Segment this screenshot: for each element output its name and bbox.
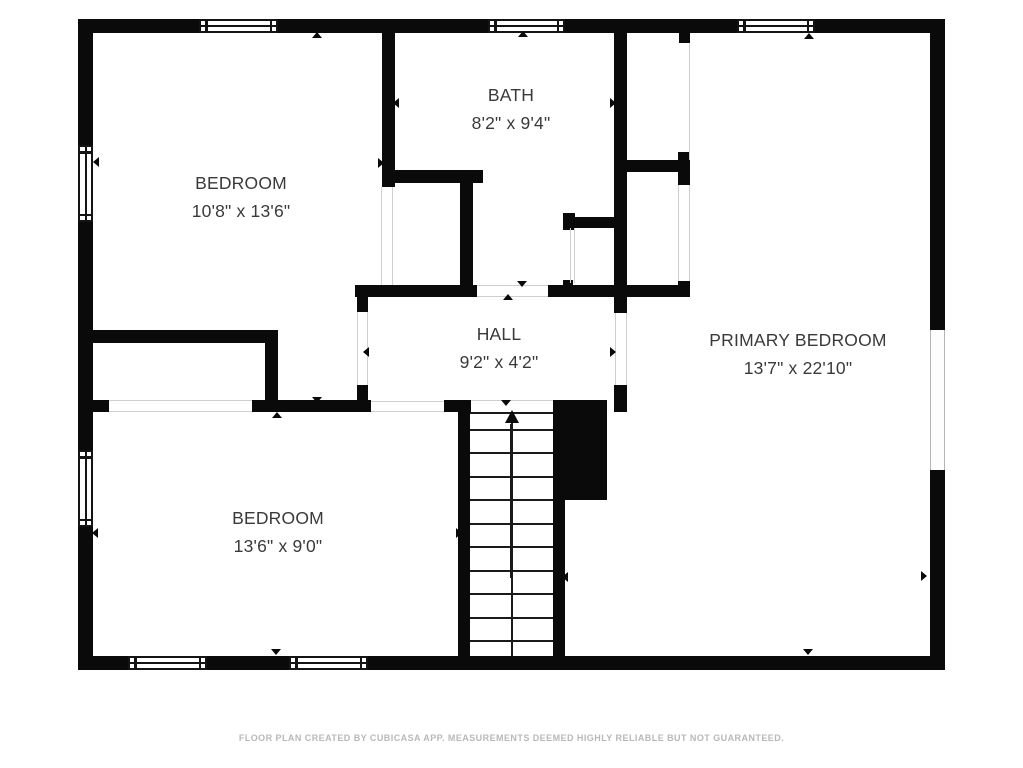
window-glass-line	[490, 25, 563, 27]
window-frame-cap	[270, 21, 273, 31]
wall-segment	[355, 285, 477, 297]
door-opening-line	[371, 401, 444, 402]
down-arrow-marker	[803, 649, 813, 655]
window-glass-line	[85, 147, 87, 220]
right-arrow-marker	[610, 98, 616, 108]
room-name: BEDROOM	[192, 169, 291, 197]
right-arrow-marker	[610, 347, 616, 357]
up-arrow-marker	[503, 294, 513, 300]
down-arrow-marker	[271, 649, 281, 655]
window-glass-line	[85, 452, 87, 525]
window-frame-cap	[494, 21, 497, 31]
wall-segment	[614, 33, 627, 313]
door-opening-line	[689, 43, 690, 160]
up-arrow-marker	[312, 32, 322, 38]
window-frame-cap	[360, 658, 363, 668]
room-name: BEDROOM	[232, 504, 324, 532]
door-opening-line	[570, 228, 571, 283]
room-label-bedroom-bottom-left: BEDROOM 13'6" x 9'0"	[232, 504, 324, 560]
door-opening-line	[357, 312, 358, 385]
down-arrow-marker	[501, 400, 511, 406]
door-opening-line	[392, 187, 393, 285]
window-frame-cap	[557, 21, 560, 31]
window	[128, 656, 207, 670]
window-frame-cap	[134, 658, 137, 668]
window-frame-cap	[80, 519, 91, 522]
wall-segment	[78, 656, 945, 670]
room-name: HALL	[460, 320, 539, 348]
left-arrow-marker	[92, 528, 98, 538]
up-arrow-marker	[804, 33, 814, 39]
up-arrow-marker	[518, 31, 528, 37]
wall-segment	[78, 19, 93, 670]
door-opening-line	[471, 400, 553, 401]
window	[930, 330, 945, 470]
door-opening-line	[626, 313, 627, 385]
wall-segment	[93, 330, 278, 343]
room-dimensions: 8'2" x 9'4"	[472, 109, 551, 137]
door-opening-line	[477, 285, 548, 286]
left-arrow-marker	[393, 98, 399, 108]
window-frame-cap	[807, 21, 810, 31]
door-opening-line	[371, 411, 444, 412]
wall-segment	[460, 170, 473, 297]
window-frame-cap	[743, 21, 746, 31]
down-arrow-marker	[312, 397, 322, 403]
wall-segment	[357, 285, 368, 312]
window-glass-line	[739, 25, 813, 27]
right-arrow-marker	[456, 528, 462, 538]
left-arrow-marker	[93, 157, 99, 167]
room-label-bath: BATH 8'2" x 9'4"	[472, 81, 551, 137]
room-dimensions: 9'2" x 4'2"	[460, 348, 539, 376]
up-arrow-marker	[272, 412, 282, 418]
window-glass-line	[291, 662, 366, 664]
door-opening-line	[109, 400, 252, 401]
room-label-hall: HALL 9'2" x 4'2"	[460, 320, 539, 376]
room-dimensions: 13'6" x 9'0"	[232, 532, 324, 560]
wall-segment	[563, 280, 573, 286]
window	[289, 656, 368, 670]
door-opening-line	[678, 185, 679, 281]
stair-direction-arrow-shaft	[510, 424, 512, 578]
window	[78, 145, 93, 222]
room-label-primary-bedroom: PRIMARY BEDROOM 13'7" x 22'10"	[709, 326, 886, 382]
left-arrow-marker	[363, 347, 369, 357]
window-frame-cap	[80, 214, 91, 217]
wall-segment	[614, 385, 627, 412]
right-arrow-marker	[378, 158, 384, 168]
window-glass-line	[130, 662, 205, 664]
window-glass-line	[201, 25, 276, 27]
window-frame-cap	[80, 151, 91, 154]
window-frame-cap	[295, 658, 298, 668]
wall-segment	[678, 281, 690, 297]
left-arrow-marker	[562, 572, 568, 582]
down-arrow-marker	[517, 281, 527, 287]
floor-plan-canvas: BEDROOM 10'8" x 13'6" BATH 8'2" x 9'4" P…	[0, 0, 1023, 768]
wall-segment	[78, 400, 109, 412]
right-arrow-marker	[921, 571, 927, 581]
window	[78, 450, 93, 527]
window-frame-cap	[205, 21, 208, 31]
window-frame-cap	[199, 658, 202, 668]
room-name: PRIMARY BEDROOM	[709, 326, 886, 354]
wall-segment	[679, 33, 690, 43]
room-dimensions: 10'8" x 13'6"	[192, 197, 291, 225]
wall-segment	[553, 400, 607, 500]
door-opening-line	[109, 411, 252, 412]
disclaimer-text: FLOOR PLAN CREATED BY CUBICASA APP. MEAS…	[0, 733, 1023, 743]
door-opening-line	[574, 228, 575, 283]
stair-direction-arrow-head	[505, 410, 519, 423]
room-label-bedroom-top-left: BEDROOM 10'8" x 13'6"	[192, 169, 291, 225]
door-opening-line	[689, 185, 690, 281]
room-dimensions: 13'7" x 22'10"	[709, 354, 886, 382]
window	[737, 19, 815, 33]
window-frame-cap	[80, 456, 91, 459]
door-opening-line	[381, 187, 382, 285]
window	[199, 19, 278, 33]
room-name: BATH	[472, 81, 551, 109]
